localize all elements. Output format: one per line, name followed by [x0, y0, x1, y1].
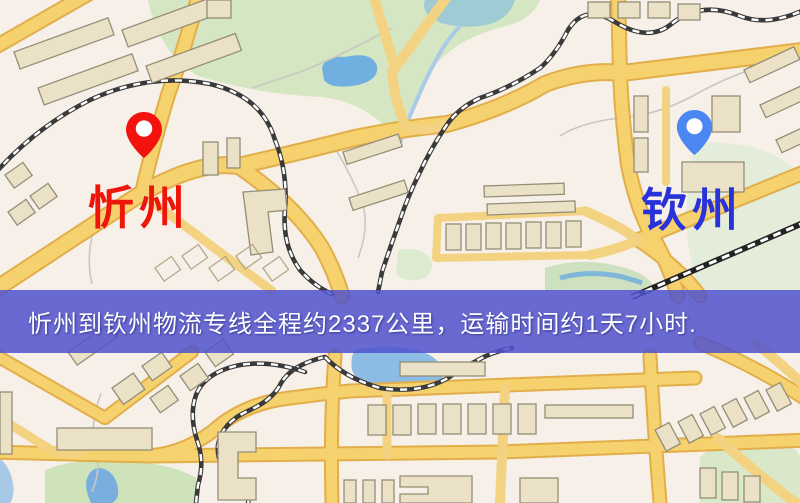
origin-label: 忻州	[88, 172, 190, 238]
map-canvas[interactable]	[0, 0, 800, 503]
destination-pin-icon[interactable]	[671, 101, 718, 164]
destination-label: 钦州	[641, 174, 743, 240]
map-screenshot: 忻州 钦州 忻州到钦州物流专线全程约2337公里，运输时间约1天7小时.	[0, 0, 800, 503]
origin-pin-icon[interactable]	[120, 103, 168, 167]
route-info-banner: 忻州到钦州物流专线全程约2337公里，运输时间约1天7小时.	[0, 290, 800, 353]
route-info-text: 忻州到钦州物流专线全程约2337公里，运输时间约1天7小时.	[0, 304, 697, 339]
